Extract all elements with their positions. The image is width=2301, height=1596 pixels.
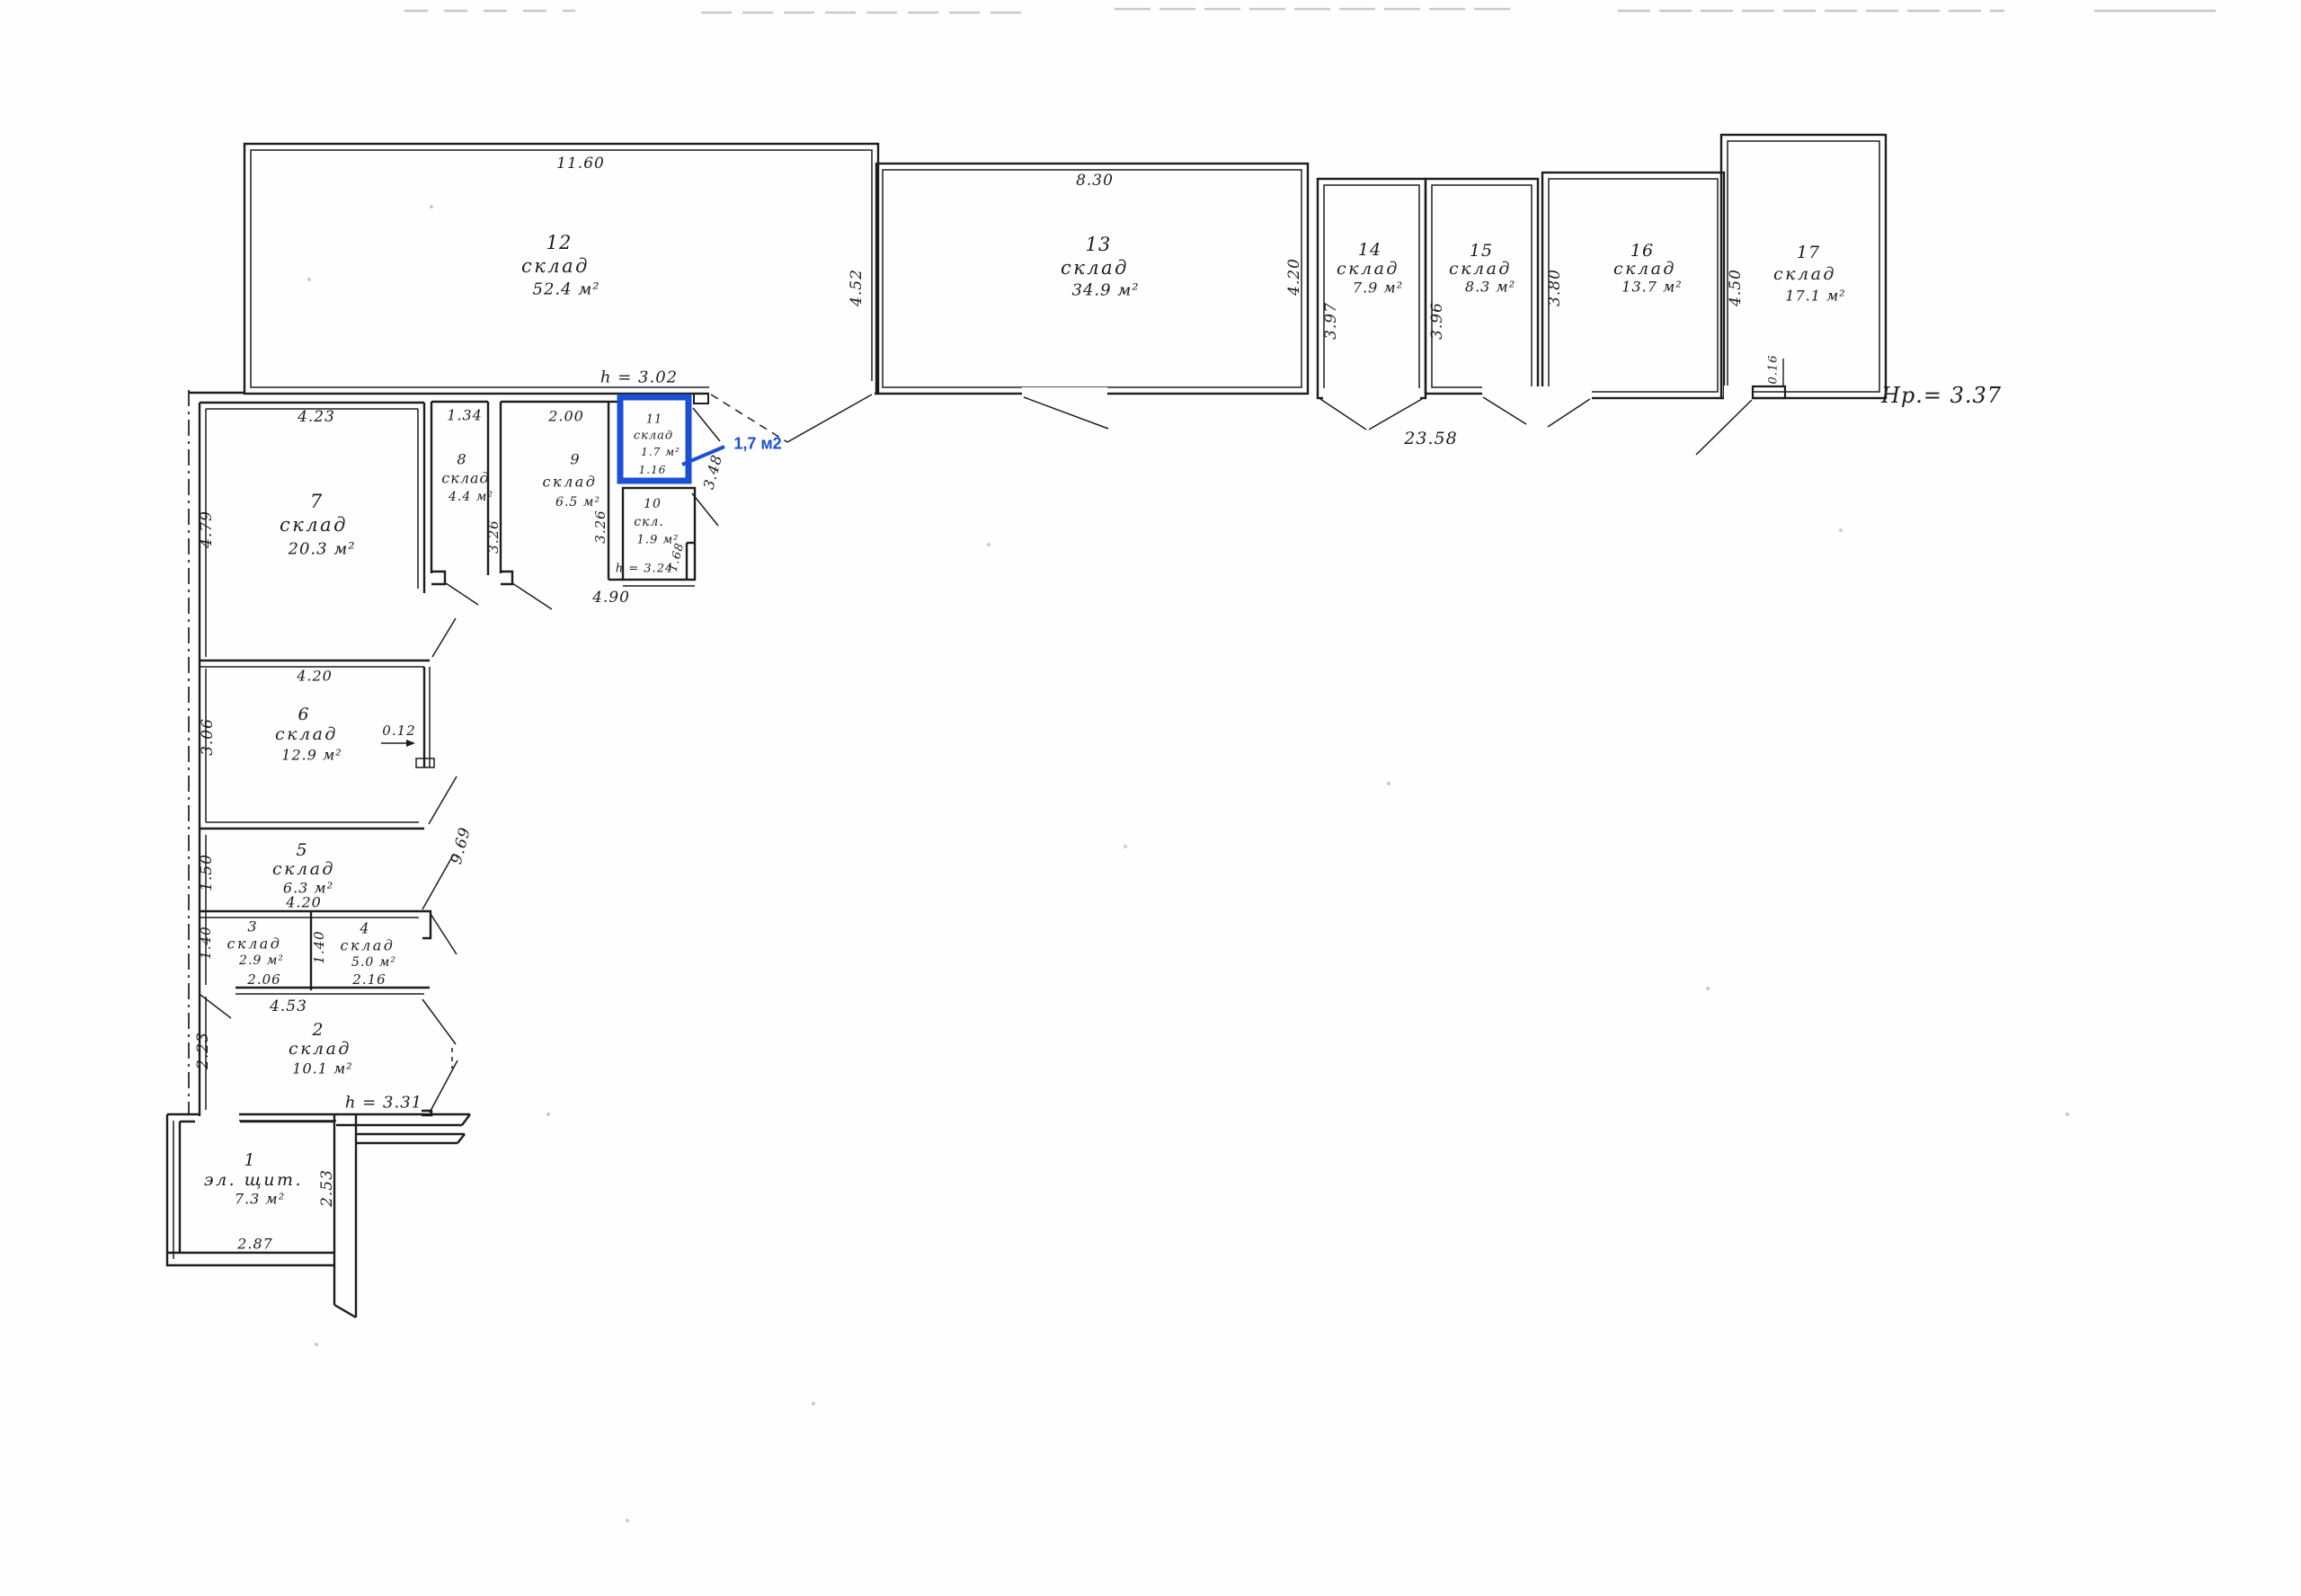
dim-r5-left: 1.50 <box>198 854 216 891</box>
room-8-type: склад <box>441 470 489 487</box>
room-6-area: 12.9 м² <box>281 747 342 764</box>
room-10-type: скл. <box>634 515 664 529</box>
room-12-type: склад <box>521 255 590 277</box>
room-3-number: 3 <box>247 918 257 935</box>
room-17-area: 17.1 м² <box>1785 288 1845 305</box>
dim-r7-top: 4.23 <box>298 408 335 426</box>
room-16-number: 16 <box>1630 241 1654 261</box>
room-8-number: 8 <box>457 451 466 468</box>
dim-r8-top: 1.34 <box>447 407 483 424</box>
dim-r17-left: 4.50 <box>1727 269 1745 306</box>
room-7-area: 20.3 м² <box>289 540 356 559</box>
room-2-type: склад <box>289 1039 351 1059</box>
height-note-room-10: h = 3.24 <box>616 563 673 576</box>
room-1-area: 7.3 м² <box>235 1191 285 1208</box>
floor-plan-drawing <box>0 0 2301 1596</box>
height-note-room-2: h = 3.31 <box>345 1094 422 1113</box>
room-1-walls <box>166 1114 356 1317</box>
room-14-type: склад <box>1337 259 1399 279</box>
dim-r4-bottom: 2.16 <box>352 971 386 988</box>
room-6-number: 6 <box>298 705 309 724</box>
room-4-area: 5.0 м² <box>351 955 396 970</box>
room-15-area: 8.3 м² <box>1465 279 1515 296</box>
dim-r6-stub: 0.12 <box>382 723 415 739</box>
dim-r12-top: 11.60 <box>556 155 605 173</box>
room-9-walls <box>501 402 623 584</box>
floor-plan-page: 1 эл. щит. 7.3 м² 2 склад 10.1 м² 3 скла… <box>0 0 2301 1596</box>
room-9-number: 9 <box>570 451 580 468</box>
room-6-type: склад <box>275 724 338 744</box>
dim-r34-span: 4.53 <box>270 997 307 1015</box>
scan-artifact-marks <box>404 9 2216 13</box>
room-1-type: эл. щит. <box>204 1170 303 1190</box>
dim-r15-left: 3.96 <box>1428 302 1446 340</box>
dim-r5-bottom: 4.20 <box>286 894 322 911</box>
dim-r3-left: 1.40 <box>198 926 214 959</box>
room-5-type: склад <box>272 859 335 879</box>
dim-r13-right: 4.20 <box>1285 258 1303 296</box>
room-15-type: склад <box>1449 259 1512 279</box>
dim-r1-bottom: 2.87 <box>237 1236 273 1253</box>
dim-r9-height: 3.26 <box>592 510 609 543</box>
room-3-area: 2.9 м² <box>239 953 284 968</box>
room-2-area: 10.1 м² <box>292 1060 352 1077</box>
room-2-number: 2 <box>312 1020 324 1040</box>
room-13-area: 34.9 м² <box>1072 281 1140 300</box>
room-7-number: 7 <box>310 491 323 512</box>
room-16-type: склад <box>1613 259 1676 279</box>
room-15-number: 15 <box>1470 241 1493 261</box>
dim-r10-bottom: 4.90 <box>592 589 630 607</box>
dim-r2-left: 2.23 <box>194 1032 212 1069</box>
room-14-number: 14 <box>1358 240 1381 260</box>
dim-r8-height: 3.26 <box>485 519 502 553</box>
dim-r6-left: 3.06 <box>199 718 217 756</box>
building-height-note: Нр.= 3.37 <box>1881 383 2002 408</box>
dim-r9-top: 2.00 <box>548 408 584 425</box>
door-swings <box>200 395 1752 1113</box>
room-11-number: 11 <box>646 413 663 427</box>
room-16-area: 13.7 м² <box>1621 279 1682 296</box>
room-14-area: 7.9 м² <box>1353 279 1403 297</box>
room-12-number: 12 <box>546 232 573 253</box>
dim-r12-right: 4.52 <box>848 269 866 306</box>
room-11-type: склад <box>634 430 673 443</box>
room-10-number: 10 <box>644 497 662 511</box>
room-13-walls <box>876 164 1308 394</box>
dim-r11-width: 1.16 <box>639 464 667 476</box>
room-5-number: 5 <box>296 840 307 860</box>
height-note-room-12: h = 3.02 <box>600 368 678 387</box>
room-9-area: 6.5 м² <box>555 495 600 510</box>
room-3-type: склад <box>227 935 282 953</box>
room-4-number: 4 <box>360 920 369 937</box>
room-9-type: склад <box>543 474 598 491</box>
room-12-area: 52.4 м² <box>533 280 600 299</box>
highlight-area-annotation: 1,7 м2 <box>733 435 781 454</box>
dim-r14-left: 3.97 <box>1322 302 1340 340</box>
room-1-number: 1 <box>244 1150 255 1170</box>
room-13-type: склад <box>1061 257 1129 279</box>
dim-r3-bottom: 2.06 <box>247 971 280 988</box>
dim-r6-top: 4.20 <box>297 668 333 685</box>
room-17-number: 17 <box>1797 243 1820 262</box>
dim-bottom-span: 23.58 <box>1404 429 1457 448</box>
room-4-type: склад <box>341 937 395 954</box>
dim-r7-left: 4.79 <box>198 510 216 548</box>
dim-r13-top: 8.30 <box>1076 172 1114 190</box>
room-8-area: 4.4 м² <box>449 490 493 504</box>
room-6-walls <box>200 662 424 829</box>
dim-r16-left: 3.80 <box>1546 269 1564 306</box>
dim-r4-left: 1.40 <box>311 930 327 963</box>
dim-r17-wall: 0.16 <box>1767 355 1781 385</box>
room-7-type: склад <box>280 514 348 536</box>
room-17-type: склад <box>1773 264 1836 284</box>
room-11-area: 1.7 м² <box>641 446 680 458</box>
room-13-number: 13 <box>1086 234 1112 255</box>
dim-r1-right: 2.53 <box>318 1169 336 1207</box>
